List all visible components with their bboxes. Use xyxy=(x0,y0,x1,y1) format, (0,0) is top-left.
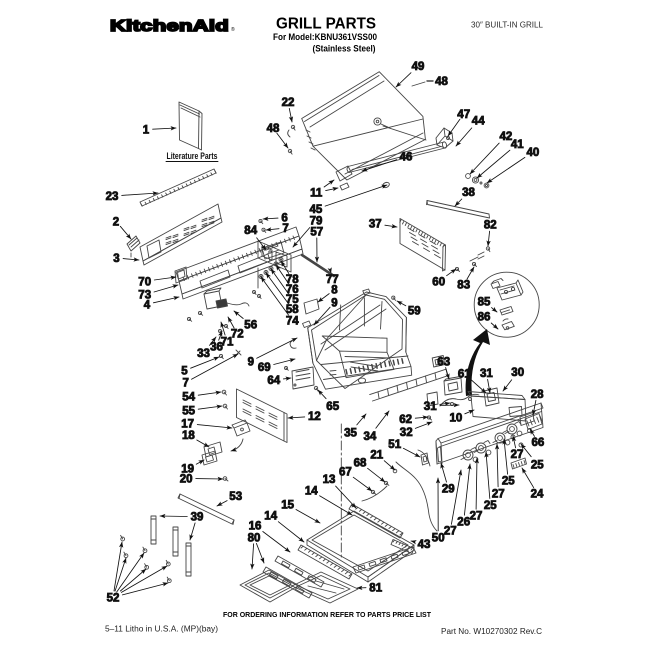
svg-text:17: 17 xyxy=(181,419,194,431)
svg-text:GRILL PARTS: GRILL PARTS xyxy=(276,16,376,33)
svg-text:27: 27 xyxy=(492,488,505,500)
svg-text:50: 50 xyxy=(432,532,445,544)
svg-text:74: 74 xyxy=(286,315,299,327)
svg-text:63: 63 xyxy=(437,356,450,368)
svg-text:4: 4 xyxy=(144,299,151,311)
svg-text:43: 43 xyxy=(418,539,431,551)
svg-text:81: 81 xyxy=(369,582,382,594)
svg-text:85: 85 xyxy=(478,297,491,309)
svg-text:2: 2 xyxy=(113,216,119,228)
svg-text:29: 29 xyxy=(442,483,455,495)
svg-text:65: 65 xyxy=(326,401,339,413)
svg-text:5: 5 xyxy=(181,366,188,378)
svg-text:47: 47 xyxy=(457,109,470,121)
svg-text:18: 18 xyxy=(182,430,195,442)
svg-text:34: 34 xyxy=(364,431,377,443)
svg-text:20: 20 xyxy=(180,474,193,486)
svg-text:Part No. W10270302 Rev.C: Part No. W10270302 Rev.C xyxy=(441,627,542,636)
svg-text:10: 10 xyxy=(450,413,463,425)
svg-text:38: 38 xyxy=(462,187,475,199)
svg-text:28: 28 xyxy=(531,389,544,401)
svg-text:35: 35 xyxy=(344,427,357,439)
svg-text:49: 49 xyxy=(412,61,425,73)
svg-text:69: 69 xyxy=(258,362,271,374)
svg-text:66: 66 xyxy=(532,437,545,449)
svg-text:25: 25 xyxy=(484,500,497,512)
svg-text:31: 31 xyxy=(480,368,493,380)
svg-text:9: 9 xyxy=(331,297,337,309)
svg-text:40: 40 xyxy=(527,147,540,159)
svg-text:62: 62 xyxy=(399,414,412,426)
svg-text:83: 83 xyxy=(457,280,470,292)
svg-text:51: 51 xyxy=(388,439,401,451)
svg-text:59: 59 xyxy=(408,306,421,318)
svg-text:86: 86 xyxy=(478,312,491,324)
svg-text:27: 27 xyxy=(511,449,524,461)
svg-text:22: 22 xyxy=(282,97,295,109)
svg-text:56: 56 xyxy=(244,320,257,332)
svg-text:8: 8 xyxy=(331,285,338,297)
svg-text:33: 33 xyxy=(197,348,210,360)
svg-text:68: 68 xyxy=(354,457,367,469)
svg-text:23: 23 xyxy=(106,191,119,203)
svg-text:44: 44 xyxy=(472,116,485,128)
svg-text:®: ® xyxy=(231,26,235,33)
svg-text:32: 32 xyxy=(400,427,413,439)
svg-text:24: 24 xyxy=(531,488,544,500)
svg-text:25: 25 xyxy=(502,476,515,488)
svg-text:46: 46 xyxy=(400,152,413,164)
svg-text:67: 67 xyxy=(339,467,352,479)
svg-text:30″ BUILT-IN GRILL: 30″ BUILT-IN GRILL xyxy=(471,20,543,30)
svg-text:11: 11 xyxy=(310,188,323,200)
svg-text:27: 27 xyxy=(444,526,457,538)
svg-text:31: 31 xyxy=(424,401,437,413)
svg-text:(Stainless Steel): (Stainless Steel) xyxy=(313,44,376,54)
svg-text:39: 39 xyxy=(191,512,204,524)
svg-text:15: 15 xyxy=(281,500,294,512)
svg-text:80: 80 xyxy=(248,532,261,544)
svg-text:3: 3 xyxy=(113,253,119,265)
svg-text:41: 41 xyxy=(511,139,524,151)
svg-text:5–11 Litho in U.S.A. (MP)(bay): 5–11 Litho in U.S.A. (MP)(bay) xyxy=(105,625,218,634)
svg-text:48: 48 xyxy=(267,123,280,135)
svg-text:27: 27 xyxy=(470,511,483,523)
svg-text:14: 14 xyxy=(305,486,318,498)
svg-text:12: 12 xyxy=(308,411,321,423)
svg-text:14: 14 xyxy=(264,511,277,523)
svg-text:1: 1 xyxy=(143,125,150,137)
svg-text:For Model:KBNU361VSS00: For Model:KBNU361VSS00 xyxy=(273,32,377,42)
svg-text:64: 64 xyxy=(267,375,280,387)
svg-text:52: 52 xyxy=(107,592,120,604)
svg-text:82: 82 xyxy=(484,220,497,232)
svg-text:16: 16 xyxy=(249,521,262,533)
svg-text:FOR ORDERING INFORMATION REFER: FOR ORDERING INFORMATION REFER TO PARTS … xyxy=(223,610,431,619)
svg-text:36: 36 xyxy=(210,341,223,353)
svg-text:26: 26 xyxy=(457,517,470,529)
svg-text:21: 21 xyxy=(370,449,383,461)
svg-text:Literature Parts: Literature Parts xyxy=(167,151,218,161)
svg-text:55: 55 xyxy=(182,406,195,418)
svg-text:60: 60 xyxy=(432,276,445,288)
svg-text:30: 30 xyxy=(511,367,524,379)
svg-text:70: 70 xyxy=(138,276,151,288)
svg-text:7: 7 xyxy=(182,377,188,389)
svg-text:84: 84 xyxy=(244,225,257,237)
svg-text:KitchenAid: KitchenAid xyxy=(110,18,229,35)
svg-text:9: 9 xyxy=(248,356,254,368)
svg-text:53: 53 xyxy=(229,491,242,503)
svg-text:13: 13 xyxy=(323,474,336,486)
svg-text:54: 54 xyxy=(182,392,195,404)
svg-text:57: 57 xyxy=(310,226,323,238)
svg-text:25: 25 xyxy=(531,459,544,471)
svg-text:61: 61 xyxy=(458,369,471,381)
svg-text:48: 48 xyxy=(435,76,448,88)
svg-text:7: 7 xyxy=(282,223,288,235)
svg-text:37: 37 xyxy=(369,219,382,231)
